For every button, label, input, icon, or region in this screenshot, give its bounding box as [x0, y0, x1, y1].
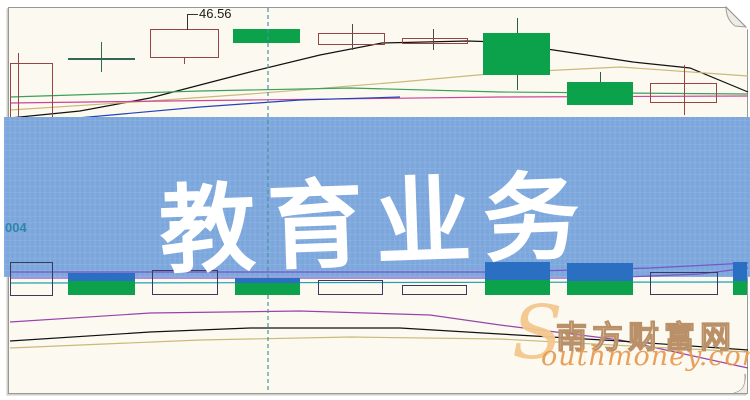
volume-bar-hollow [650, 272, 718, 295]
stock-chart-screenshot: 46.56 004 教育业务 S 南方财富网 outhmoney.com [0, 0, 750, 400]
volume-bar-blue-cap [733, 262, 747, 281]
page-fold-corner-icon [714, 0, 750, 34]
volume-bar-hollow [402, 285, 467, 295]
volume-bar-hollow [10, 262, 53, 296]
axis-label: 004 [5, 220, 27, 235]
volume-bar-blue-cap [68, 273, 135, 281]
banner-title: 教育业务 [157, 139, 594, 293]
volume-bar-green [68, 281, 135, 295]
volume-bar-green [733, 281, 747, 295]
watermark-en-text: outhmoney.com [541, 341, 750, 372]
page-curl-icon [726, 368, 750, 396]
volume-bar-green [567, 281, 633, 295]
